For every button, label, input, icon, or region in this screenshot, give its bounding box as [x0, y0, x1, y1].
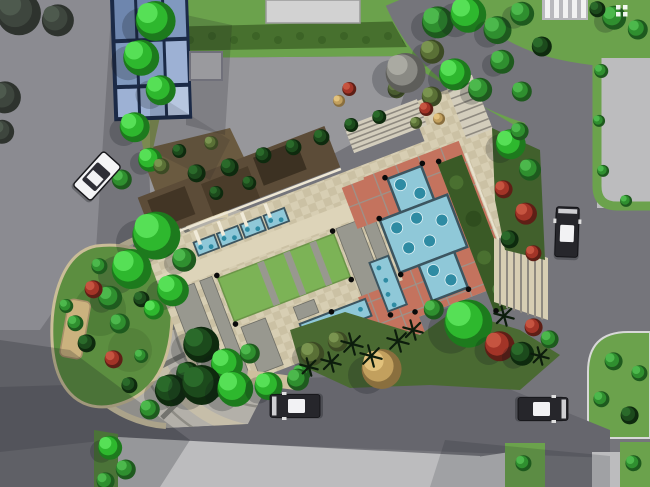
- tree-tan: [333, 95, 345, 107]
- tree-mid: [287, 369, 309, 391]
- tree-olive: [410, 117, 422, 129]
- car-dark: [515, 395, 568, 423]
- icon-cell: [623, 12, 628, 17]
- tree-red: [495, 180, 513, 198]
- tree-dark: [78, 334, 96, 352]
- tree-mid: [594, 64, 608, 78]
- hedge-shrub: [252, 32, 260, 40]
- tree-dark: [221, 158, 239, 176]
- crosswalk-bar: [554, 0, 559, 18]
- site-plan-rendering: [0, 0, 650, 487]
- tree-red: [105, 350, 123, 368]
- tree-dark: [188, 164, 206, 182]
- tree-mid: [134, 349, 148, 363]
- tree-tan: [433, 113, 445, 125]
- tree-mid: [240, 344, 260, 364]
- crosswalk-bar: [563, 0, 568, 18]
- tree-olive: [153, 158, 169, 174]
- icon-cell: [623, 5, 628, 10]
- tree-mid: [593, 115, 605, 127]
- tree-mid: [631, 365, 647, 381]
- tree-mid: [67, 315, 83, 331]
- tree-red: [525, 245, 541, 261]
- hedge-shrub: [274, 36, 282, 44]
- hedge-shrub: [318, 36, 326, 44]
- tree-mid: [424, 300, 444, 320]
- tree-mid: [519, 159, 541, 181]
- tree-dark: [172, 144, 186, 158]
- tree-mid: [110, 314, 130, 334]
- car-dark: [270, 392, 323, 420]
- tree-red: [419, 102, 433, 116]
- tree-bright: [144, 300, 164, 320]
- tree-dark: [621, 406, 639, 424]
- rounded-lawn-ne-corner: [588, 332, 650, 438]
- hedge-shrub: [340, 32, 348, 40]
- tree-mid: [593, 391, 609, 407]
- tree-olive: [204, 136, 218, 150]
- crosswalk-bar: [581, 0, 586, 18]
- tree-red: [342, 82, 356, 96]
- tree-dark: [313, 129, 329, 145]
- tree-sil: [42, 4, 74, 36]
- tree-mid: [140, 400, 160, 420]
- tree-mid: [628, 20, 648, 40]
- crosswalk: [542, 0, 588, 20]
- tree-mid: [116, 460, 136, 480]
- tree-dark: [209, 186, 223, 200]
- tree-dark: [255, 147, 271, 163]
- tree-mid: [620, 195, 632, 207]
- crosswalk-bar: [572, 0, 577, 18]
- tree-mid: [91, 258, 107, 274]
- tree-red: [525, 318, 543, 336]
- crosswalk-bar: [545, 0, 550, 18]
- right-building-pad: [597, 58, 650, 208]
- tree-dark: [501, 230, 519, 248]
- hedge-shrub: [384, 32, 392, 40]
- glass-panel: [166, 41, 188, 84]
- tree-dark: [344, 118, 358, 132]
- tree-mid: [597, 165, 609, 177]
- site-plan-svg: [0, 0, 650, 487]
- hedge-shrub: [296, 32, 304, 40]
- tree-mid: [59, 299, 73, 313]
- tree-dark: [121, 377, 137, 393]
- car-dark: [552, 207, 582, 261]
- tree-dark: [242, 176, 256, 190]
- tree-mid: [515, 455, 531, 471]
- top-building-pad: [266, 0, 360, 23]
- tree-dark: [532, 37, 552, 57]
- tree-mid: [625, 455, 641, 471]
- tree-red: [515, 203, 537, 225]
- hedge-shrub: [362, 36, 370, 44]
- tree-dark: [589, 1, 605, 17]
- icon-cell: [616, 5, 621, 10]
- icon-cell: [616, 12, 621, 17]
- tree-mid: [605, 352, 623, 370]
- tree-mid: [512, 82, 532, 102]
- tree-mid: [541, 330, 559, 348]
- tree-red: [85, 280, 103, 298]
- tree-dark: [285, 139, 301, 155]
- canopy-side-pad: [190, 52, 222, 80]
- tree-dark: [372, 110, 386, 124]
- tree-mid: [511, 122, 529, 140]
